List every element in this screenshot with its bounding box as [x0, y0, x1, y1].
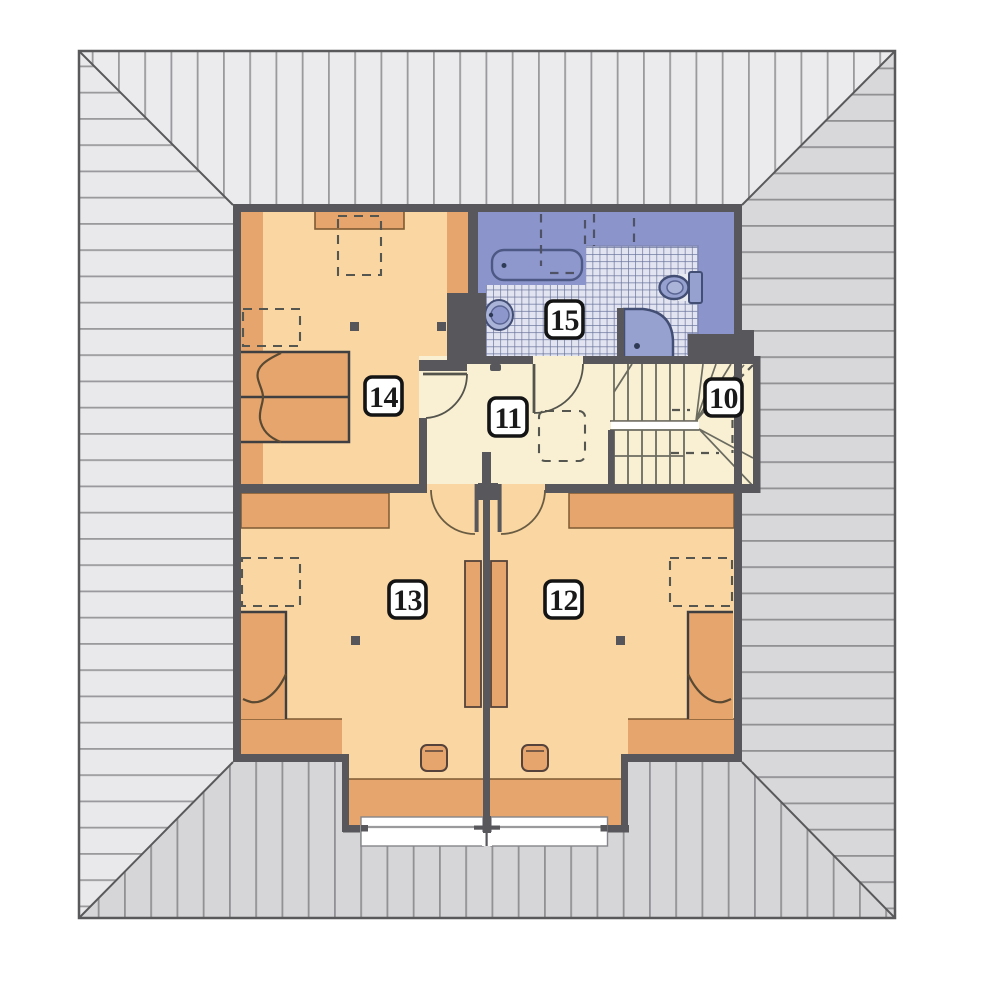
- svg-text:14: 14: [369, 381, 399, 414]
- svg-text:13: 13: [393, 584, 422, 617]
- svg-text:10: 10: [709, 382, 738, 415]
- svg-text:12: 12: [549, 584, 578, 617]
- svg-text:15: 15: [550, 304, 579, 337]
- svg-text:11: 11: [494, 402, 521, 435]
